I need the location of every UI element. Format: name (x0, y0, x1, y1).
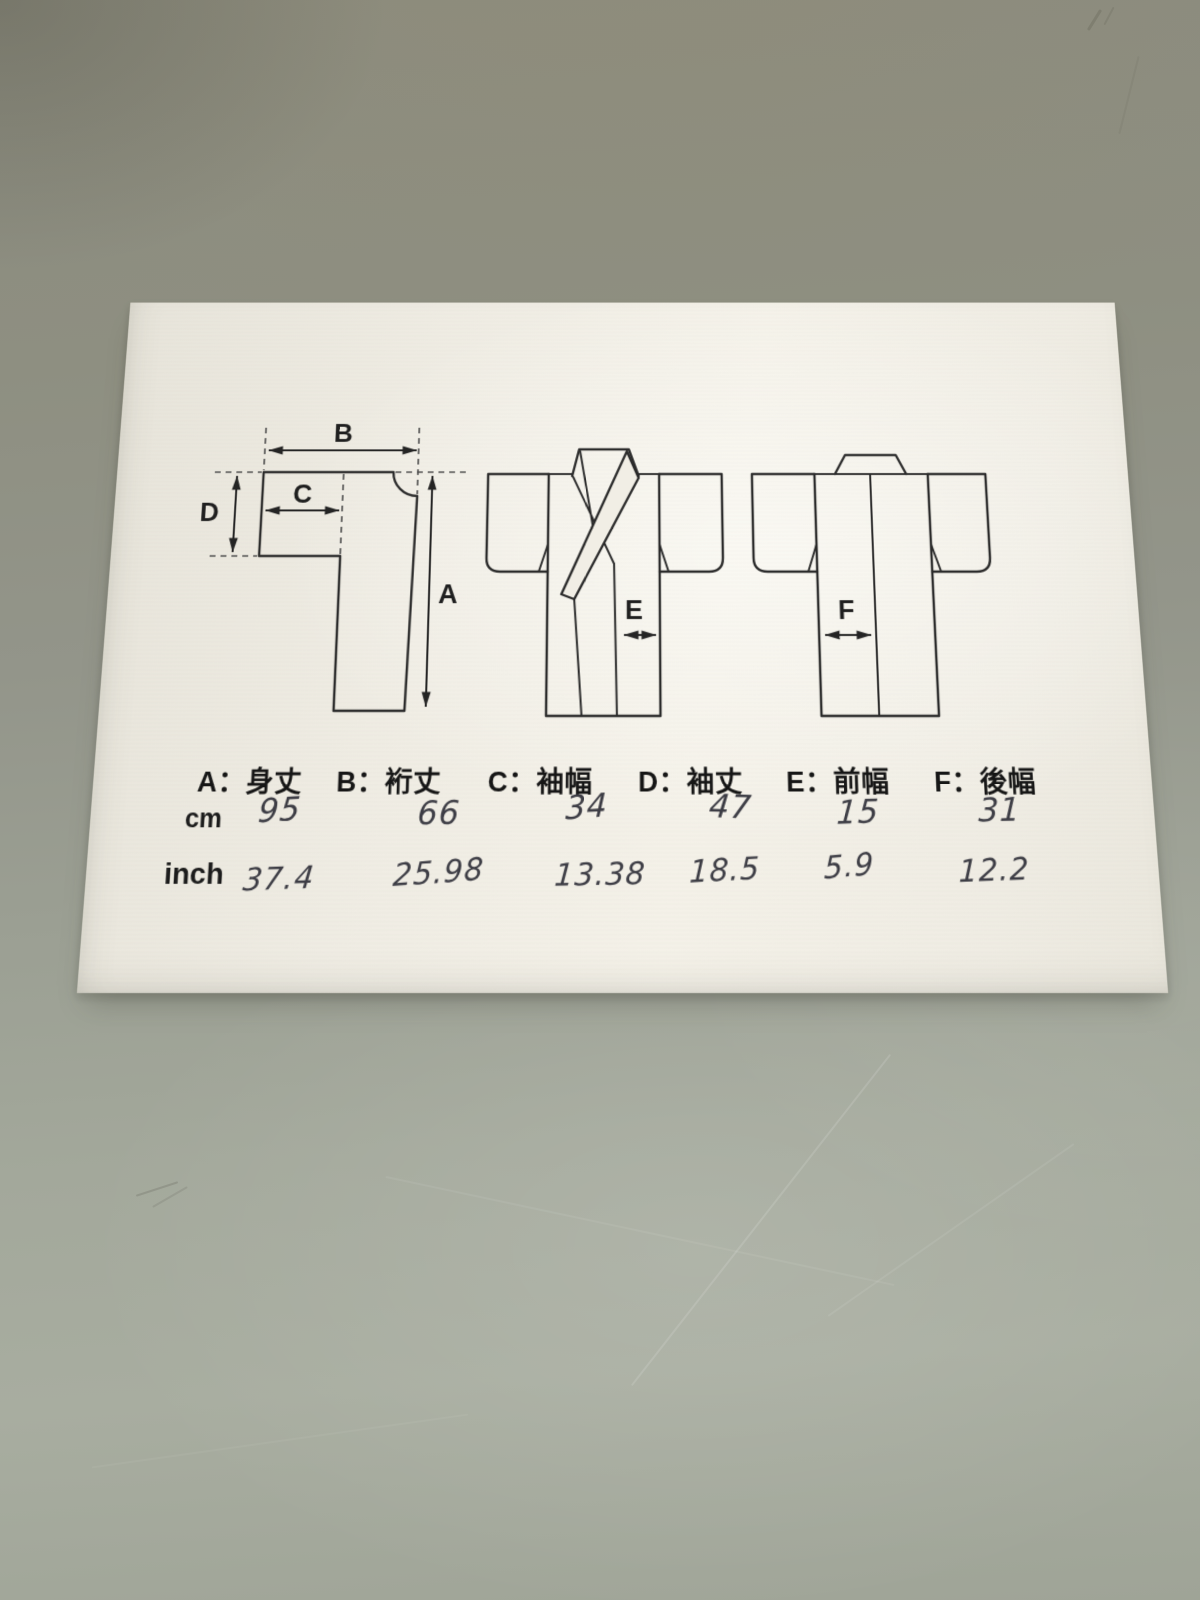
dimension-label-f: F (838, 595, 855, 626)
back-center-seam (870, 474, 879, 716)
cm-value-d: 47 (707, 788, 753, 827)
inch-value-c: 13.38 (553, 855, 647, 893)
measurement-sheet: B C D A E (77, 303, 1168, 993)
photo-scene: B C D A E (0, 0, 1200, 1600)
inch-value-b: 25.98 (392, 850, 485, 893)
dimension-label-b: B (333, 419, 353, 448)
cm-row-label: cm (184, 804, 223, 835)
inch-value-f: 12.2 (958, 850, 1029, 889)
dimension-label-a: A (438, 579, 458, 609)
front-left-sleeve (486, 474, 549, 572)
table-scratch (1118, 56, 1139, 134)
dimension-arrow-d (233, 476, 237, 552)
cm-value-a: 95 (256, 790, 302, 830)
table-scratch (631, 1054, 891, 1386)
inch-row-label: inch (163, 857, 225, 891)
flat-kimono-outline (251, 472, 418, 711)
dimension-arrow-a (426, 476, 433, 707)
inch-value-a: 37.4 (241, 859, 317, 898)
cm-value-c: 34 (565, 787, 609, 828)
back-right-sleeve (928, 474, 991, 572)
cm-value-f: 31 (978, 791, 1022, 830)
dimension-label-c: C (292, 479, 313, 508)
flat-kimono-diagram: B C D A (187, 419, 470, 711)
front-kimono-diagram: E (483, 449, 725, 716)
back-left-sleeve (752, 474, 817, 572)
table-scratch (92, 1414, 469, 1469)
dimension-label-e: E (625, 595, 643, 626)
front-right-sleeve (659, 474, 723, 572)
cm-value-e: 15 (835, 793, 880, 833)
dimension-label-d: D (199, 497, 220, 527)
inch-value-d: 18.5 (689, 850, 761, 890)
table-scratch (385, 1176, 894, 1286)
legend-item-b: B：裄丈 (336, 759, 442, 800)
table-smudge (1103, 7, 1114, 26)
cm-value-b: 66 (416, 794, 462, 833)
back-kimono-diagram: F (752, 455, 999, 716)
table-smudge (1087, 9, 1102, 31)
back-collar (834, 455, 906, 474)
inch-value-e: 5.9 (824, 845, 875, 886)
table-scratch (828, 1143, 1075, 1317)
back-body (814, 474, 939, 716)
front-underarm-seams (539, 544, 669, 571)
